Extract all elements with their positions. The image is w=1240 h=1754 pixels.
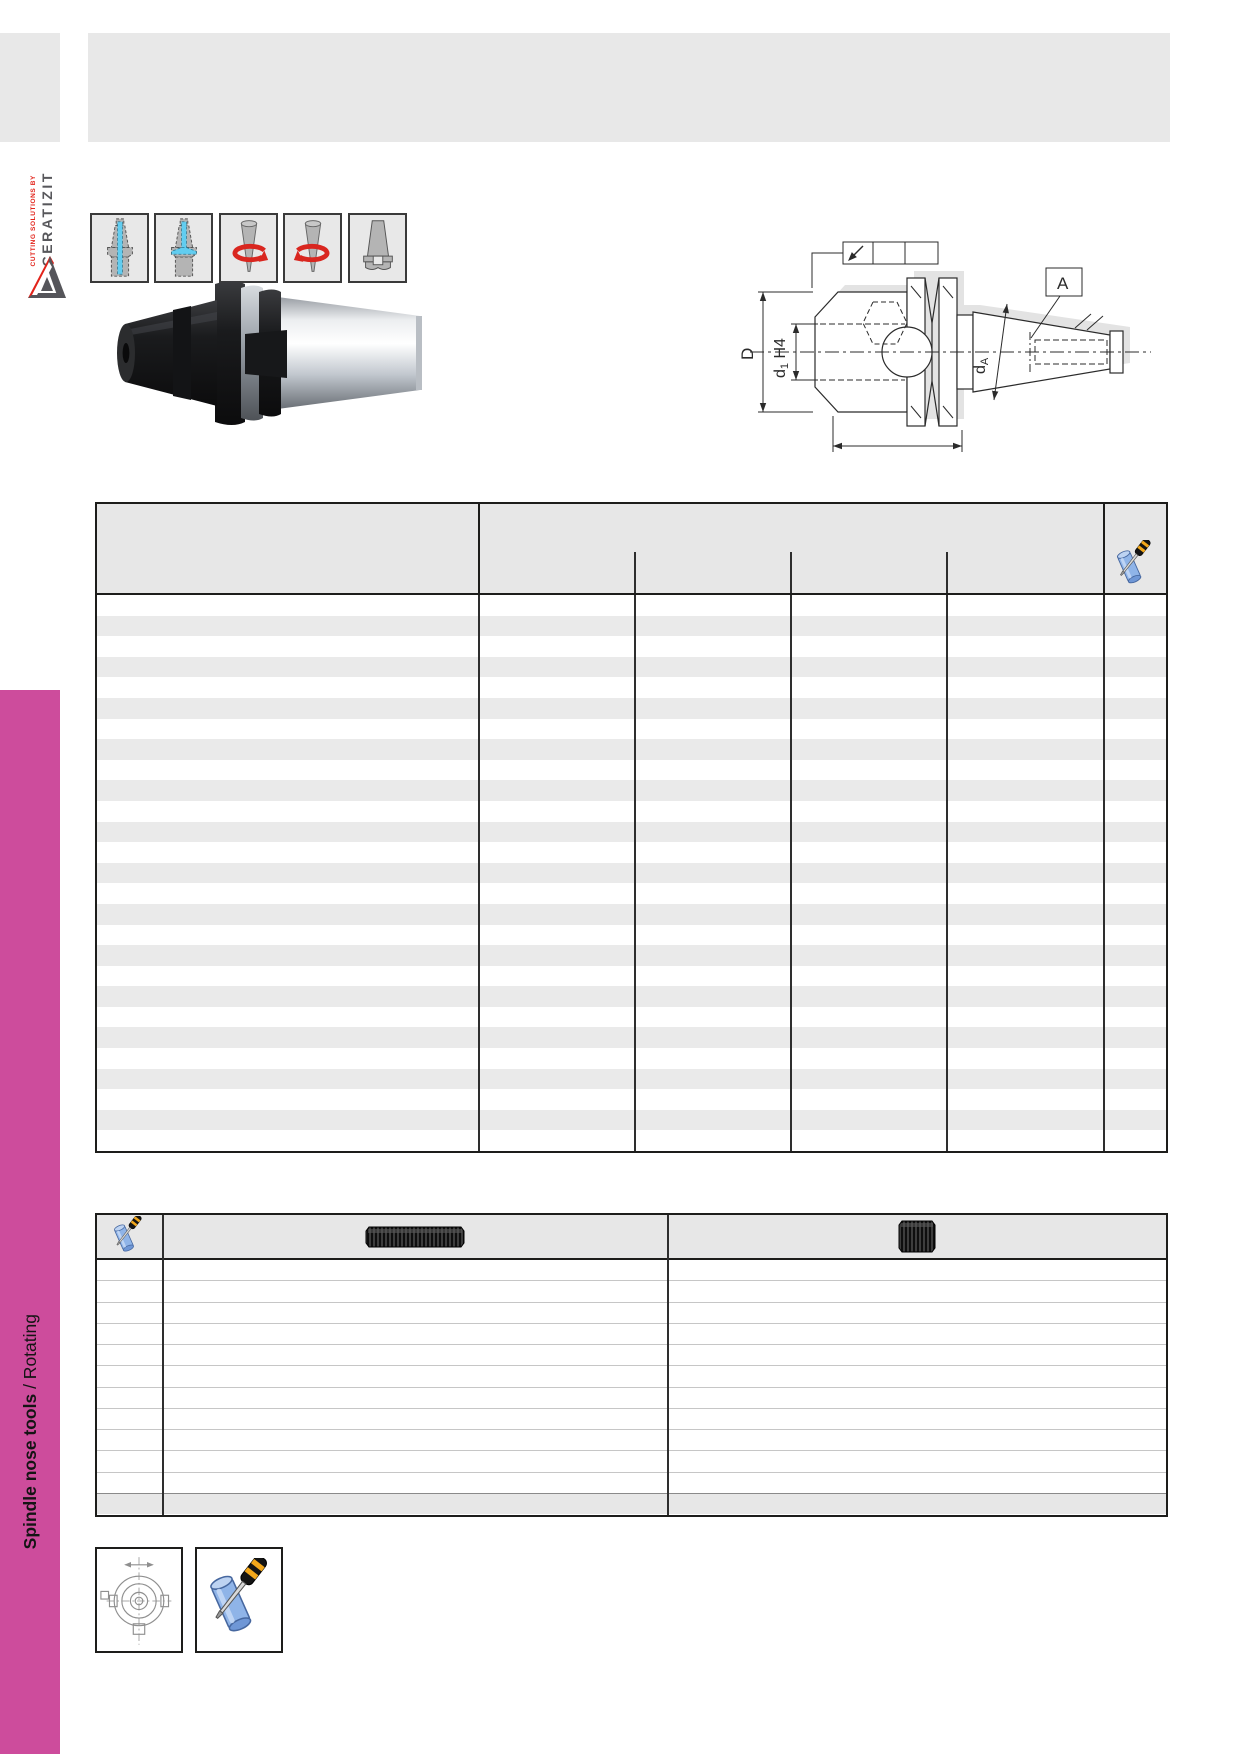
section-title-regular: / Rotating <box>20 1314 40 1394</box>
table-row <box>97 698 1166 719</box>
column-divider <box>634 595 636 1151</box>
table-row <box>97 1387 1166 1408</box>
threaded-stud-photo <box>365 1222 465 1252</box>
column-divider <box>1103 595 1105 1151</box>
table-row <box>97 1110 1166 1131</box>
table-row <box>97 1472 1166 1493</box>
header-subdivider <box>634 552 636 593</box>
mounting-tool-box <box>195 1547 283 1653</box>
table-row <box>97 925 1166 946</box>
set-screw-photo <box>895 1219 939 1254</box>
table-row <box>97 1408 1166 1429</box>
header-subdivider <box>790 552 792 593</box>
svg-text:d1 H4: d1 H4 <box>772 338 791 378</box>
table-row <box>97 657 1166 678</box>
main-dimension-table <box>95 502 1168 1153</box>
table-row <box>97 1280 1166 1301</box>
section-title-bold: Spindle nose tools <box>20 1393 40 1549</box>
table-row <box>97 1069 1166 1090</box>
logo-tagline: CUTTING SOLUTIONS BY <box>30 175 37 266</box>
product-photo <box>95 272 430 434</box>
table-row <box>97 842 1166 863</box>
sleeve-screwdriver-icon <box>208 1558 270 1643</box>
table-row <box>97 1450 1166 1471</box>
main-table-header <box>97 504 1166 595</box>
table-row <box>97 1302 1166 1323</box>
table-row <box>97 719 1166 740</box>
sleeve-screwdriver-icon <box>111 1216 145 1257</box>
table-row <box>97 883 1166 904</box>
table-row <box>97 945 1166 966</box>
catalog-page: CUTTING SOLUTIONS BY CERATIZIT <box>0 0 1240 1754</box>
logo-brand: CERATIZIT <box>39 171 55 266</box>
table-row <box>97 1048 1166 1069</box>
table-row <box>97 822 1166 843</box>
table-row <box>97 616 1166 637</box>
table-row <box>97 1429 1166 1450</box>
ceratizit-triangle-logo-icon <box>26 254 68 302</box>
technical-drawing: D d1 H4 dA A <box>735 228 1160 468</box>
table-row <box>97 904 1166 925</box>
table-row <box>97 677 1166 698</box>
main-table-body <box>97 595 1166 1151</box>
column-divider <box>667 1215 669 1515</box>
column-divider <box>478 595 480 1151</box>
accessories-table-header <box>97 1215 1166 1260</box>
accessories-table-body <box>97 1260 1166 1493</box>
header-divider <box>1103 504 1105 593</box>
table-row <box>97 986 1166 1007</box>
table-row <box>97 1027 1166 1048</box>
brand-logo: CUTTING SOLUTIONS BY CERATIZIT <box>30 148 55 266</box>
table-row <box>97 1130 1166 1151</box>
spindle-nose-top-view-box <box>95 1547 183 1653</box>
table-row <box>97 1323 1166 1344</box>
header-subdivider <box>946 552 948 593</box>
accessories-table-footer <box>97 1493 1166 1514</box>
table-row <box>97 739 1166 760</box>
spindle-nose-top-view-drawing <box>99 1551 179 1649</box>
table-row <box>97 966 1166 987</box>
dim-label-D: D <box>738 348 757 360</box>
column-divider <box>162 1215 164 1515</box>
section-sidebar: Spindle nose tools / Rotating <box>0 690 60 1754</box>
table-row <box>97 1260 1166 1280</box>
table-row <box>97 801 1166 822</box>
table-row <box>97 1344 1166 1365</box>
table-row <box>97 636 1166 657</box>
accessories-table <box>95 1213 1168 1517</box>
table-row <box>97 1007 1166 1028</box>
table-row <box>97 780 1166 801</box>
top-left-gray-band <box>0 33 60 142</box>
table-row <box>97 760 1166 781</box>
header-divider <box>478 504 480 593</box>
table-row <box>97 1365 1166 1386</box>
table-row <box>97 863 1166 884</box>
view-flag-A: A <box>1057 274 1069 293</box>
top-header-band <box>88 33 1170 142</box>
section-title: Spindle nose tools / Rotating <box>0 1314 60 1549</box>
table-row <box>97 1089 1166 1110</box>
column-divider <box>790 595 792 1151</box>
table-row <box>97 595 1166 616</box>
column-divider <box>946 595 948 1151</box>
sleeve-screwdriver-icon <box>1113 540 1155 590</box>
